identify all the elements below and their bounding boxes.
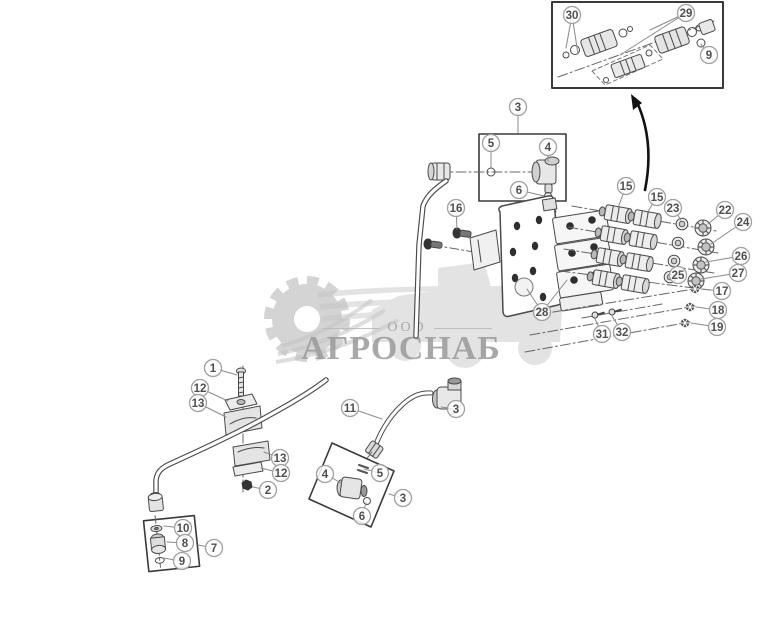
- svg-text:9: 9: [179, 556, 185, 568]
- svg-text:9: 9: [706, 50, 712, 62]
- svg-text:13: 13: [274, 453, 287, 465]
- svg-text:5: 5: [377, 468, 384, 480]
- svg-text:18: 18: [712, 305, 725, 317]
- callout-23: 23: [665, 200, 682, 221]
- callout-10: 10: [164, 520, 192, 537]
- mount-bolts-and-bracket: [424, 228, 500, 270]
- bolt-left: [424, 239, 442, 249]
- callout-15: 15: [618, 178, 635, 209]
- callout-12: 12: [261, 465, 290, 482]
- svg-text:3: 3: [453, 404, 459, 416]
- svg-text:23: 23: [667, 203, 680, 215]
- svg-text:12: 12: [194, 383, 207, 395]
- svg-text:11: 11: [344, 403, 357, 415]
- svg-text:27: 27: [732, 268, 745, 280]
- callout-3: 3: [510, 99, 527, 134]
- arrow-to-inset-icon: [631, 94, 648, 190]
- svg-text:4: 4: [545, 142, 552, 154]
- svg-text:6: 6: [359, 511, 365, 523]
- exploded-parts-diagram: 3029935461615152322242627251718193132281…: [0, 0, 781, 641]
- nut-2: [242, 480, 252, 490]
- callout-19: 19: [691, 319, 726, 336]
- clamp-13-lower: [233, 441, 270, 466]
- svg-text:28: 28: [536, 307, 549, 319]
- svg-text:19: 19: [711, 322, 724, 334]
- callout-24: 24: [711, 214, 752, 245]
- bolt-1: [237, 368, 246, 396]
- callout-15: 15: [647, 189, 666, 214]
- svg-text:32: 32: [616, 327, 629, 339]
- callout-11: 11: [342, 400, 383, 420]
- svg-text:7: 7: [211, 543, 217, 555]
- svg-text:4: 4: [322, 469, 329, 481]
- callout-17: 17: [701, 283, 731, 300]
- callout-32: 32: [612, 316, 631, 341]
- svg-text:1: 1: [210, 363, 217, 375]
- svg-text:24: 24: [737, 217, 750, 229]
- svg-text:5: 5: [488, 138, 495, 150]
- svg-text:26: 26: [735, 251, 748, 263]
- callout-9: 9: [163, 553, 191, 570]
- parts-diagram-canvas: ООО АГРОСНАБ: [0, 0, 781, 641]
- callout-3: 3: [389, 490, 412, 507]
- svg-text:3: 3: [400, 493, 406, 505]
- callout-5: 5: [483, 135, 500, 168]
- svg-text:31: 31: [596, 329, 609, 341]
- svg-text:16: 16: [450, 203, 463, 215]
- svg-text:2: 2: [265, 485, 271, 497]
- screws-31-32: [592, 308, 622, 319]
- callout-7: 7: [198, 540, 223, 557]
- svg-text:22: 22: [719, 205, 732, 217]
- svg-text:15: 15: [620, 181, 633, 193]
- svg-text:17: 17: [716, 286, 729, 298]
- callout-25: 25: [670, 266, 687, 284]
- supply-tube-left: [416, 163, 450, 336]
- svg-text:12: 12: [275, 468, 288, 480]
- callout-1: 1: [205, 360, 238, 377]
- svg-text:29: 29: [680, 8, 693, 20]
- svg-text:13: 13: [192, 398, 205, 410]
- svg-text:3: 3: [515, 102, 521, 114]
- callout-2: 2: [253, 482, 277, 499]
- svg-text:25: 25: [672, 270, 685, 282]
- fitting-8: [150, 533, 166, 554]
- svg-text:30: 30: [566, 10, 579, 22]
- lower-fitting-detail-box: [309, 443, 394, 527]
- callout-22: 22: [708, 202, 734, 225]
- callout-18: 18: [696, 302, 727, 319]
- svg-text:8: 8: [182, 538, 189, 550]
- bolt-16: [453, 228, 471, 238]
- callout-16: 16: [448, 200, 465, 230]
- svg-text:10: 10: [177, 523, 190, 535]
- callout-8: 8: [167, 535, 194, 552]
- svg-text:6: 6: [516, 185, 522, 197]
- svg-text:15: 15: [651, 192, 664, 204]
